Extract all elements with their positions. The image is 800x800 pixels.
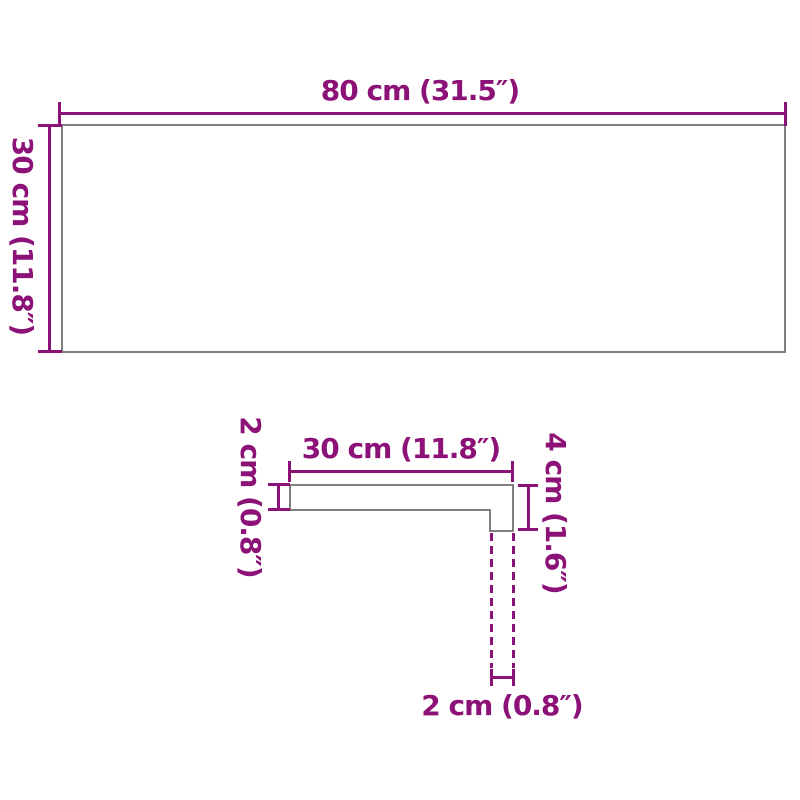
profile-nose-dimension-tick-right: [512, 669, 515, 686]
profile-height-dimension-tick-bottom: [518, 528, 538, 531]
panel-outline: [61, 124, 786, 353]
panel-width-label: 80 cm (31.5″): [321, 77, 519, 105]
profile-nose-label: 2 cm (0.8″): [421, 692, 582, 720]
panel-height-dimension-tick-bottom: [38, 350, 62, 353]
profile-thickness-dimension-line: [277, 485, 280, 510]
panel-height-label: 30 cm (11.8″): [8, 137, 36, 335]
profile-nose-extension-line-right: [512, 533, 515, 668]
profile-outline-shape: [290, 485, 513, 531]
panel-width-dimension-tick-left: [58, 102, 61, 126]
profile-width-label: 30 cm (11.8″): [302, 435, 500, 463]
dimension-diagram: 80 cm (31.5″) 30 cm (11.8″) 30 cm (11.8″…: [0, 0, 800, 800]
panel-width-dimension-tick-right: [784, 102, 787, 126]
profile-thickness-dimension-tick-bottom: [268, 508, 290, 511]
panel-height-dimension-tick-top: [38, 124, 62, 127]
profile-width-dimension-tick-left: [288, 461, 291, 482]
profile-height-dimension-tick-top: [518, 484, 538, 487]
profile-height-dimension-line: [527, 486, 530, 530]
panel-height-dimension-line: [48, 126, 51, 352]
profile-nose-extension-line-left: [490, 533, 493, 668]
profile-thickness-dimension-tick-top: [268, 483, 290, 486]
profile-height-label: 4 cm (1.6″): [541, 432, 569, 593]
profile-width-dimension-line: [289, 470, 514, 473]
profile-outline: [289, 484, 515, 533]
panel-width-dimension-line: [60, 112, 786, 115]
profile-nose-dimension-tick-left: [490, 669, 493, 686]
profile-thickness-label: 2 cm (0.8″): [236, 416, 264, 577]
profile-width-dimension-tick-right: [511, 461, 514, 482]
